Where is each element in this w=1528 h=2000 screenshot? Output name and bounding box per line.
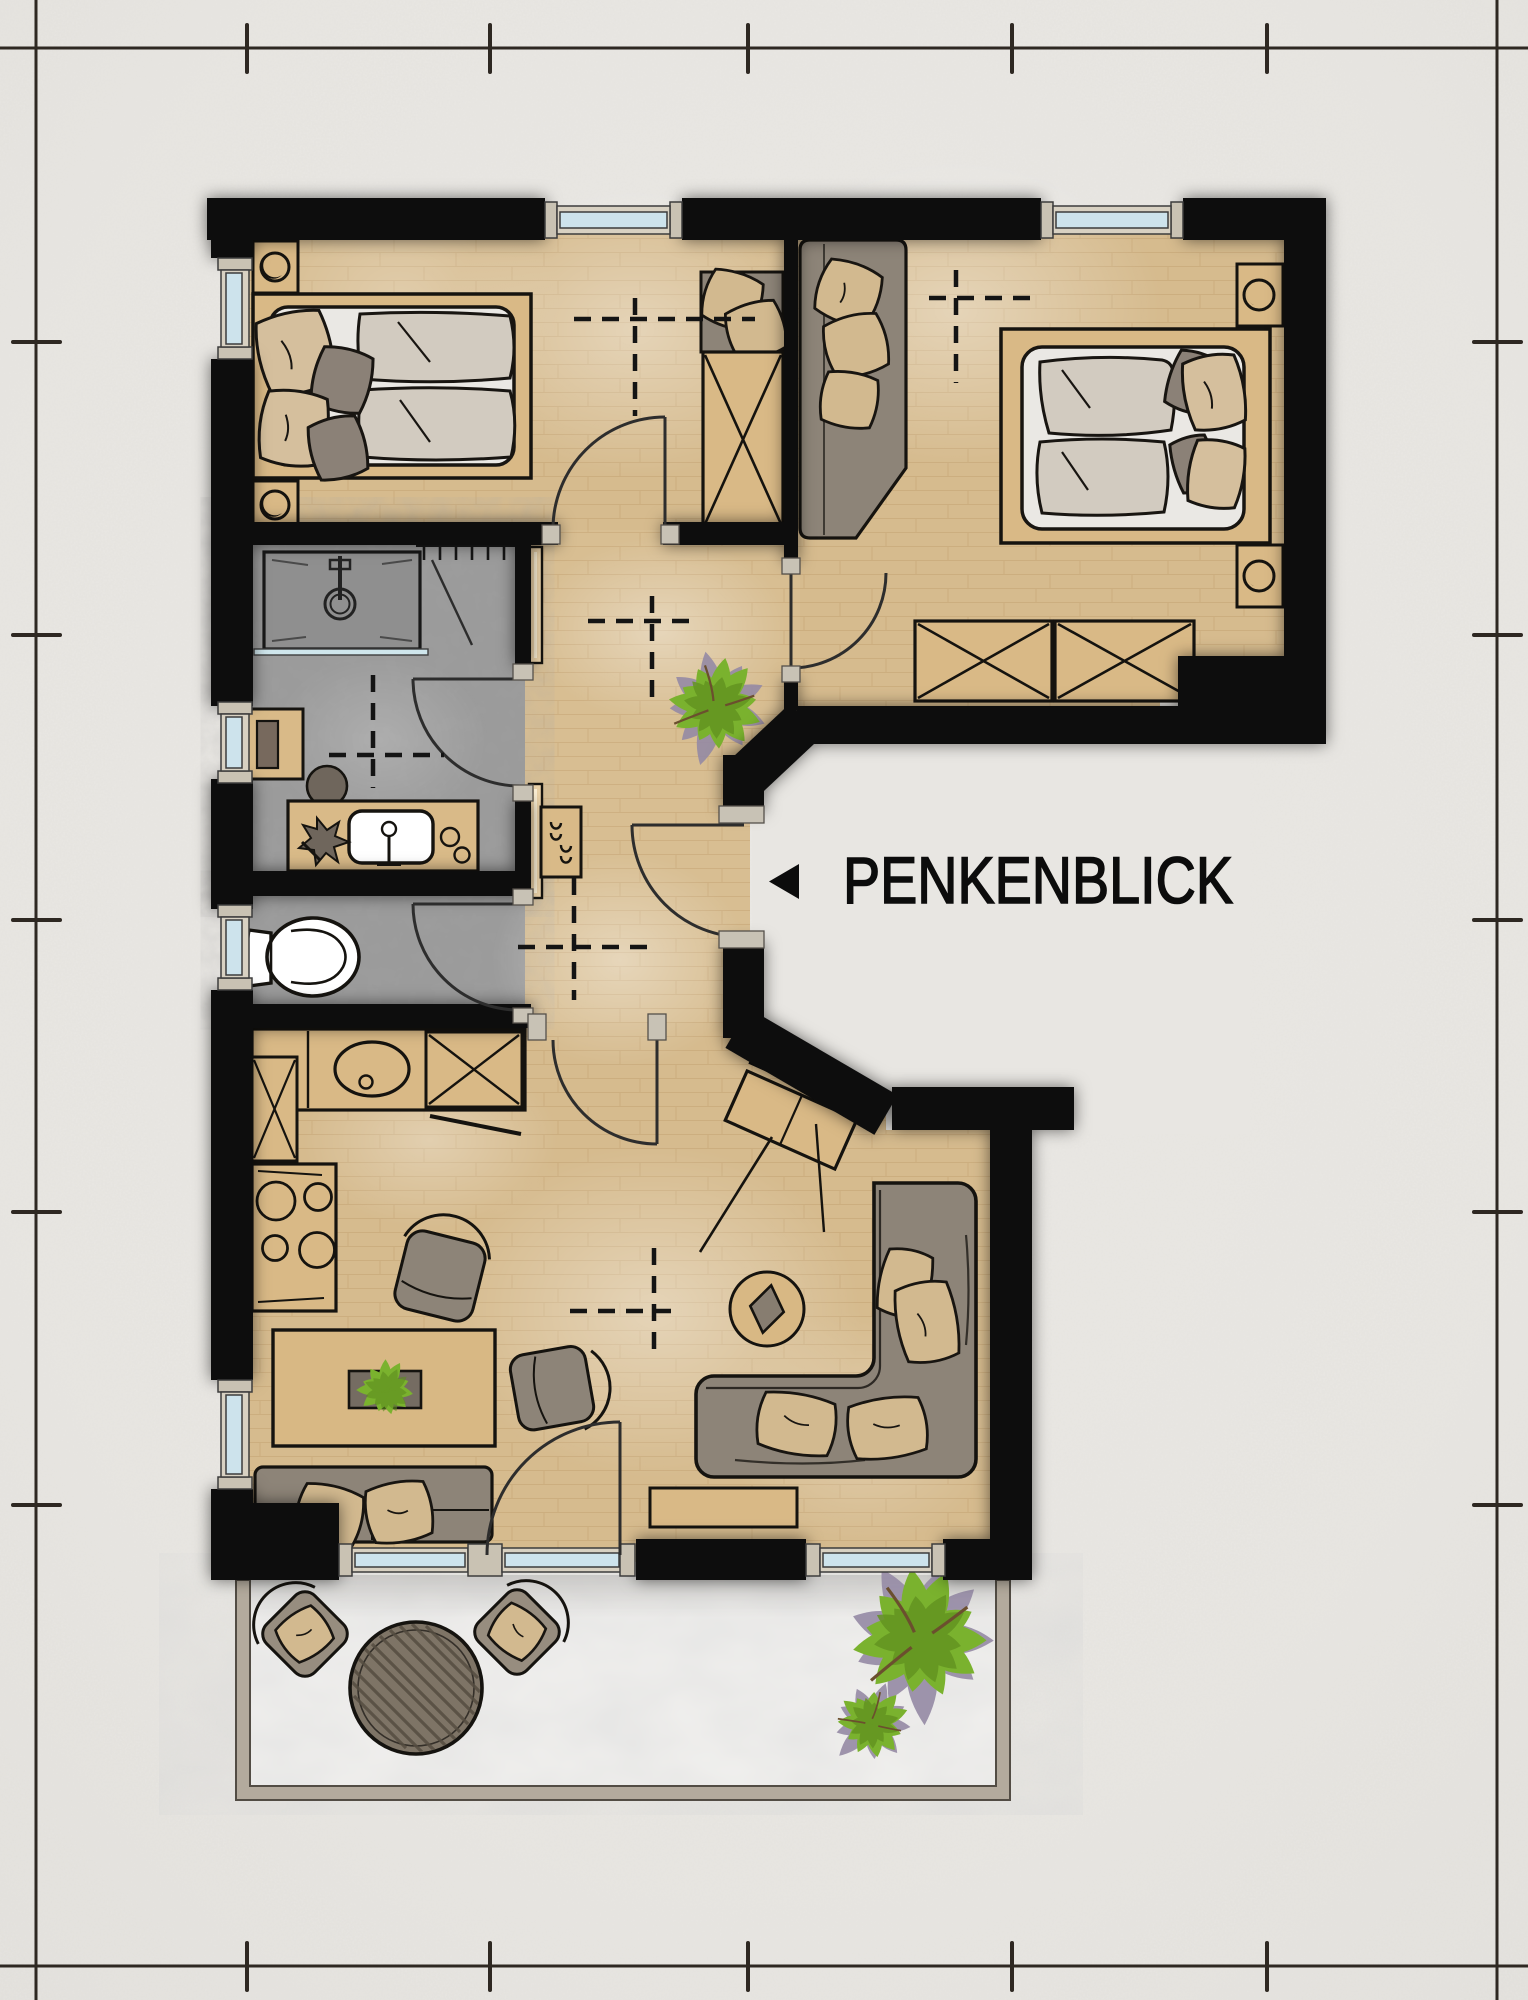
svg-text:PENKENBLICK: PENKENBLICK: [843, 843, 1233, 917]
